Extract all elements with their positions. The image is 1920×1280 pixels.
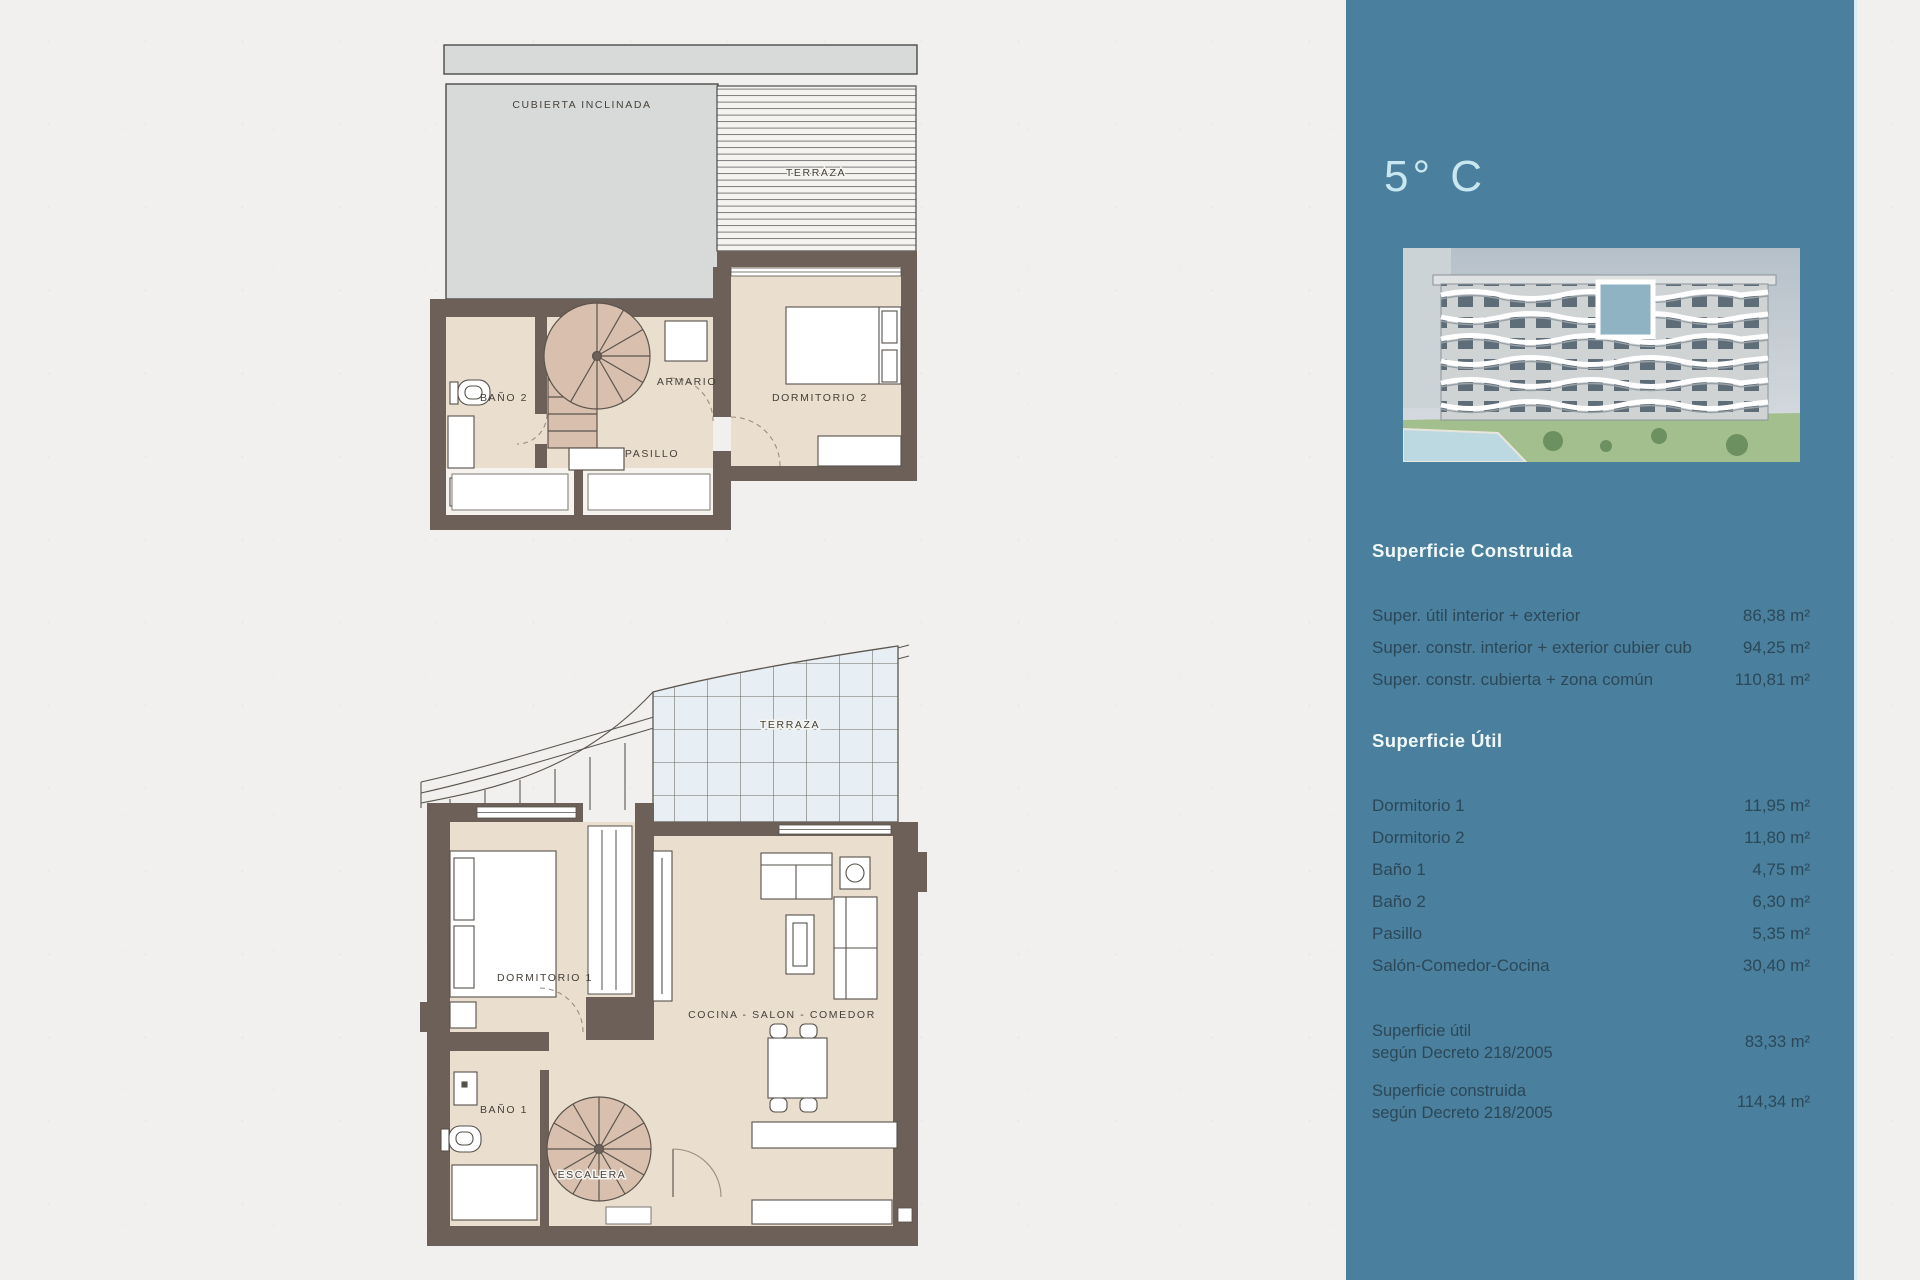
dormitorio1-label: DORMITORIO 1	[497, 972, 593, 984]
area-row-label: Super. constr. interior + exterior cubie…	[1372, 632, 1692, 664]
decreto-label-line1: Superficie útil	[1372, 1022, 1471, 1040]
area-row-label: Baño 2	[1372, 886, 1426, 918]
area-row: Dormitorio 1 11,95 m²	[1372, 790, 1810, 822]
stair-mat	[606, 1207, 651, 1224]
area-row-label: Dormitorio 1	[1372, 790, 1465, 822]
util-rows: Dormitorio 1 11,95 m² Dormitorio 2 11,80…	[1372, 790, 1810, 982]
escalera-label: ESCALERA	[558, 1169, 627, 1181]
area-row-value: 110,81 m²	[1735, 664, 1810, 696]
decreto-row: Superficie construida según Decreto 218/…	[1372, 1080, 1810, 1124]
decreto-row-label: Superficie útil según Decreto 218/2005	[1372, 1020, 1553, 1064]
util-heading: Superficie Útil	[1372, 730, 1502, 752]
roof-ridge-bar	[444, 45, 917, 74]
dormitorio2-window	[731, 268, 901, 276]
armario-label: ARMARIO	[657, 376, 717, 388]
area-row-value: 6,30 m²	[1752, 886, 1810, 918]
area-row-label: Pasillo	[1372, 918, 1422, 950]
wardrobe	[588, 826, 632, 994]
bano1-label: BAÑO 1	[480, 1103, 528, 1116]
upper-floor-plan: CUBIERTA INCLINADA TERRAZA	[430, 30, 930, 535]
construida-heading: Superficie Construida	[1372, 540, 1573, 562]
area-row: Dormitorio 2 11,80 m²	[1372, 822, 1810, 854]
area-row-label: Super. útil interior + exterior	[1372, 600, 1580, 632]
construida-rows: Super. útil interior + exterior 86,38 m²…	[1372, 600, 1810, 696]
decreto-label-line1: Superficie construida	[1372, 1082, 1526, 1100]
area-row: Super. constr. cubierta + zona común 110…	[1372, 664, 1810, 696]
area-row: Pasillo 5,35 m²	[1372, 918, 1810, 950]
info-sidebar: 5° C	[1346, 0, 1857, 1280]
area-row-label: Salón-Comedor-Cocina	[1372, 950, 1550, 982]
decreto-label-line2: según Decreto 218/2005	[1372, 1104, 1553, 1122]
lower-terraza-area: TERRAZA	[653, 646, 898, 822]
building-render	[1403, 248, 1800, 462]
area-row: Super. constr. interior + exterior cubie…	[1372, 632, 1810, 664]
area-row-value: 94,25 m²	[1743, 632, 1810, 664]
area-row-label: Baño 1	[1372, 854, 1426, 886]
unit-title: 5° C	[1384, 152, 1486, 202]
decreto-row-value: 83,33 m²	[1745, 1031, 1810, 1053]
area-row-value: 5,35 m²	[1752, 918, 1810, 950]
bano2-label: BAÑO 2	[480, 391, 528, 404]
area-row: Baño 1 4,75 m²	[1372, 854, 1810, 886]
decreto-row: Superficie útil según Decreto 218/2005 8…	[1372, 1020, 1810, 1064]
highlighted-unit	[1598, 282, 1653, 337]
cubierta-inclinada-area: CUBIERTA INCLINADA	[446, 84, 718, 299]
area-row: Baño 2 6,30 m²	[1372, 886, 1810, 918]
upper-terraza-label: TERRAZA	[786, 167, 846, 179]
pasillo-label: PASILLO	[625, 448, 679, 460]
render-building	[1433, 275, 1776, 420]
area-row-value: 30,40 m²	[1743, 950, 1810, 982]
area-row-label: Super. constr. cubierta + zona común	[1372, 664, 1653, 696]
area-row-label: Dormitorio 2	[1372, 822, 1465, 854]
lower-terraza-label: TERRAZA	[760, 719, 820, 731]
decreto-row-value: 114,34 m²	[1737, 1091, 1810, 1113]
cubierta-label: CUBIERTA INCLINADA	[512, 99, 651, 111]
area-row-value: 11,80 m²	[1744, 822, 1810, 854]
armario-closet	[665, 321, 707, 361]
area-row-value: 86,38 m²	[1743, 600, 1810, 632]
decreto-label-line2: según Decreto 218/2005	[1372, 1044, 1553, 1062]
decreto-row-label: Superficie construida según Decreto 218/…	[1372, 1080, 1553, 1124]
area-row: Salón-Comedor-Cocina 30,40 m²	[1372, 950, 1810, 982]
dormitorio2-label: DORMITORIO 2	[772, 392, 868, 404]
lower-spiral-stair	[547, 1097, 651, 1201]
cocina-label: COCINA - SALON - COMEDOR	[688, 1009, 876, 1021]
upper-terraza-area: TERRAZA	[717, 86, 916, 251]
area-row-value: 4,75 m²	[1752, 854, 1810, 886]
area-row-value: 11,95 m²	[1744, 790, 1810, 822]
area-row: Super. útil interior + exterior 86,38 m²	[1372, 600, 1810, 632]
lower-floor-plan: TERRAZA	[410, 630, 930, 1255]
